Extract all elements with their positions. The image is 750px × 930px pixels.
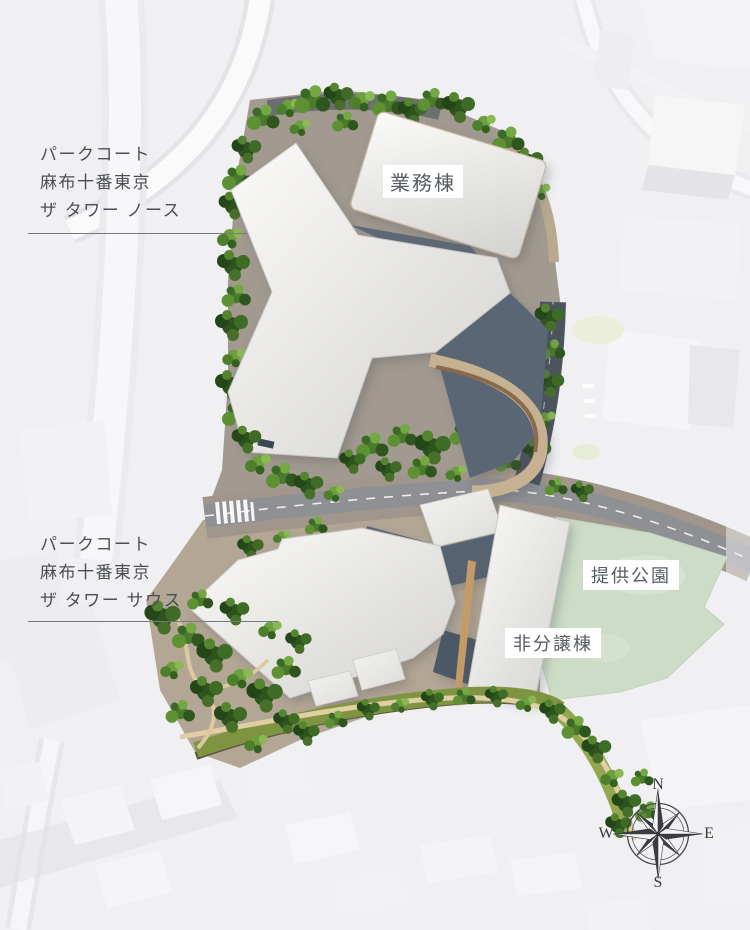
north-title-rule [28, 233, 247, 234]
non-sale-building-label: 非分譲棟 [505, 628, 601, 658]
south-tower-title-line2: 麻布十番東京 [40, 559, 182, 587]
north-tower-title-line1: パークコート [40, 141, 181, 169]
south-tower-title: パークコート 麻布十番東京 ザ タワー サウス [40, 531, 182, 615]
site-plan-rendering [0, 0, 750, 930]
north-tower-title: パークコート 麻布十番東京 ザ タワー ノース [40, 141, 181, 225]
compass-north-label: N [652, 776, 664, 794]
south-tower-title-line1: パークコート [40, 531, 182, 559]
compass-west-label: W [598, 825, 613, 843]
site-plan: パークコート 麻布十番東京 ザ タワー ノース パークコート 麻布十番東京 ザ … [0, 0, 750, 930]
north-tower-title-line3: ザ タワー ノース [40, 197, 181, 225]
compass-south-label: S [654, 874, 663, 892]
south-tower-title-line3: ザ タワー サウス [40, 587, 182, 615]
compass-east-label: E [704, 825, 714, 843]
north-tower-title-line2: 麻布十番東京 [40, 169, 181, 197]
south-title-rule [28, 621, 278, 622]
park-label: 提供公園 [583, 560, 679, 590]
office-building-label: 業務棟 [383, 165, 463, 198]
